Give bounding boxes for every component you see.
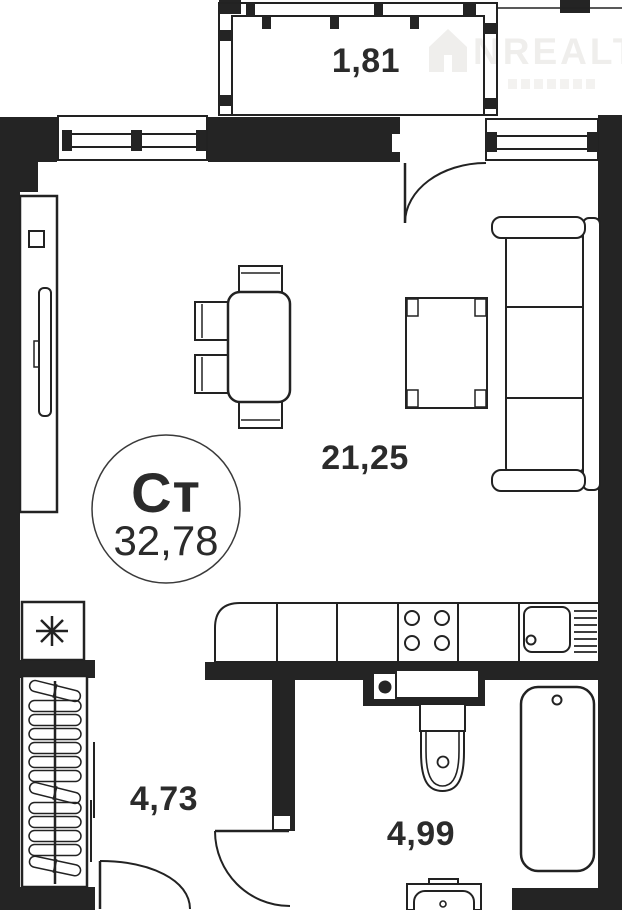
tub-drain (553, 696, 562, 705)
tv (39, 288, 51, 416)
kitchen-counter (215, 603, 599, 662)
watermark-house-icon (429, 29, 467, 72)
bathroom-door (215, 831, 290, 906)
balcony-door (405, 163, 486, 223)
sofa-seats (506, 236, 583, 471)
watermark-subline (508, 79, 595, 89)
bath-door-latch (274, 816, 290, 829)
toilet (420, 704, 465, 791)
bathroom-area-label: 4,99 (387, 815, 455, 853)
wall-left-step (0, 160, 38, 192)
balcony-area-label: 1,81 (332, 42, 400, 80)
floor-plan-drawing: NREALT (0, 0, 622, 910)
wall-bath-stub (272, 673, 295, 831)
toilet-tank (420, 704, 465, 731)
coffee-table (406, 298, 487, 408)
chair-left-1 (195, 302, 228, 340)
unit-area-label: 32,78 (113, 517, 218, 564)
fridge (22, 602, 84, 660)
bathtub (521, 687, 594, 871)
sofa (492, 217, 600, 491)
balcony-door-latch (392, 134, 402, 152)
unit-type-label: Ст (131, 461, 201, 524)
unit-badge: Ст 32,78 (92, 435, 240, 583)
window-right (486, 119, 598, 160)
washbasin (407, 879, 481, 910)
tv-cabinet (20, 196, 57, 512)
wall-bottom-left (0, 887, 95, 910)
watermark-brand: NREALT (473, 31, 622, 72)
dining-set (195, 266, 290, 428)
wall-left (0, 117, 20, 910)
water-point-dot (379, 681, 392, 694)
window-top-left (58, 116, 207, 160)
wardrobe (22, 676, 94, 887)
floor-plan: NREALT (0, 0, 622, 910)
chair-top (239, 266, 282, 293)
dining-table (228, 292, 290, 402)
wall-bottom-right (512, 888, 622, 910)
sofa-back (583, 218, 600, 490)
sink-drainboard (574, 611, 597, 652)
sofa-armrest-bottom (492, 470, 585, 491)
watermark: NREALT (429, 29, 622, 89)
wall-top-middle (208, 117, 400, 162)
cabinet-shelf (29, 231, 44, 247)
balcony-corner-cap-right (560, 0, 590, 13)
boiler-niche (397, 671, 478, 697)
sofa-armrest-top (492, 217, 585, 238)
chair-left-2 (195, 355, 228, 393)
wardrobe-sliding-door (91, 742, 94, 862)
fridge-snowflake-icon (36, 616, 68, 646)
wall-right (598, 115, 622, 910)
living-room-area-label: 21,25 (321, 439, 409, 477)
entry-door (100, 861, 190, 909)
hallway-area-label: 4,73 (130, 780, 198, 818)
chair-bottom (239, 402, 282, 428)
